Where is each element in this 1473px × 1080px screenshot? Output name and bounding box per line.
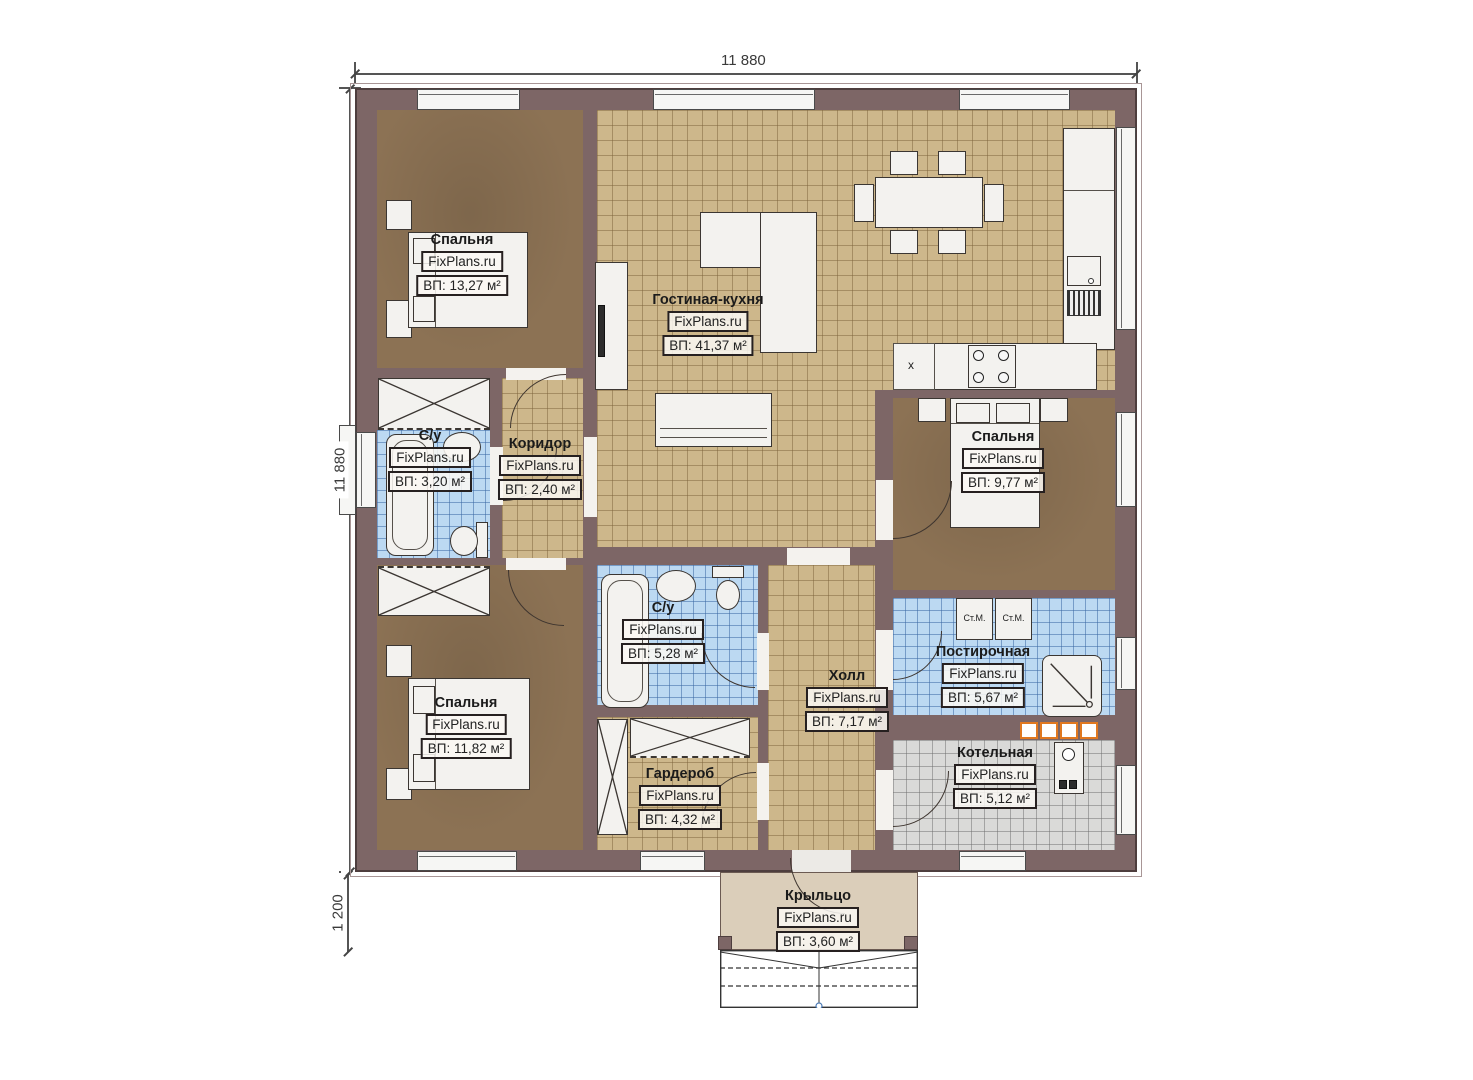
opening-bedroom2-door (876, 480, 893, 540)
nightstand (386, 645, 412, 677)
closet (378, 566, 490, 616)
room-label-boiler: Котельная FixPlans.ru ВП: 5,12 м² (953, 745, 1037, 809)
room-name: Постирочная (936, 644, 1030, 660)
coffee-table (655, 393, 772, 447)
opening-bath2-door (757, 633, 769, 690)
room-label-corridor: Коридор FixPlans.ru ВП: 2,40 м² (498, 436, 582, 500)
room-label-porch: Крыльцо FixPlans.ru ВП: 3,60 м² (776, 888, 860, 952)
room-area: ВП: 5,67 м² (941, 687, 1025, 708)
washing-machine-label: Ст.М. (959, 613, 990, 623)
stove-burner (998, 372, 1009, 383)
room-name: Котельная (957, 745, 1033, 761)
washing-machine-label: Ст.М. (998, 613, 1029, 623)
toilet-tank (712, 566, 744, 578)
room-name: Холл (829, 668, 865, 684)
washbasin (656, 570, 696, 602)
room-area: ВП: 4,32 м² (638, 809, 722, 830)
room-name: Крыльцо (785, 888, 851, 904)
window-right-laundry (1116, 637, 1136, 690)
room-area: ВП: 7,17 м² (805, 711, 889, 732)
room-label-bath2: С/у FixPlans.ru ВП: 5,28 м² (621, 600, 705, 664)
dining-chair (984, 184, 1004, 222)
window-top-2 (653, 89, 815, 110)
window-bottom-2 (640, 851, 705, 871)
dish-rack (1067, 290, 1101, 316)
room-area: ВП: 3,60 м² (776, 931, 860, 952)
toilet-bowl (450, 526, 478, 556)
radiator-section (1020, 722, 1038, 739)
room-label-bath1: С/у FixPlans.ru ВП: 3,20 м² (388, 428, 472, 492)
porch-post (718, 936, 732, 950)
room-area: ВП: 41,37 м² (662, 335, 754, 356)
watermark-box: FixPlans.ru (499, 455, 581, 476)
room-label-wardrobe: Гардероб FixPlans.ru ВП: 4,32 м² (638, 766, 722, 830)
room-name: С/у (652, 600, 675, 616)
kitchen-faucet (1088, 278, 1094, 284)
room-area: ВП: 9,77 м² (961, 472, 1045, 493)
room-area: ВП: 5,12 м² (953, 788, 1037, 809)
pillow (413, 296, 435, 322)
stove-burner (973, 372, 984, 383)
opening-bedroom3-door (506, 558, 566, 570)
counter-divider (1064, 190, 1114, 191)
porch-steps (720, 950, 918, 1008)
watermark-box: FixPlans.ru (421, 251, 503, 272)
room-area: ВП: 2,40 м² (498, 479, 582, 500)
nightstand (918, 398, 946, 422)
kitchen-sink (1067, 256, 1101, 286)
dining-chair (890, 151, 918, 175)
room-name: Гардероб (646, 766, 715, 782)
opening-boiler-door (876, 770, 893, 830)
floor-plan: 11 880 11 880 1 200 (0, 0, 1473, 1080)
dining-chair (890, 230, 918, 254)
window-bottom-1 (417, 851, 517, 871)
wardrobe-cabinet-vertical (597, 719, 628, 835)
pillow (996, 403, 1030, 423)
room-area: ВП: 5,28 м² (621, 643, 705, 664)
room-name: Спальня (435, 695, 498, 711)
room-name: Спальня (972, 429, 1035, 445)
boiler-dial (1062, 748, 1075, 761)
boiler-control (1059, 780, 1067, 789)
dining-chair (938, 151, 966, 175)
kitchen-counter-right (1063, 128, 1115, 350)
nightstand (386, 200, 412, 230)
watermark-box: FixPlans.ru (954, 764, 1036, 785)
watermark-box: FixPlans.ru (962, 448, 1044, 469)
stove-burner (998, 350, 1009, 361)
dimension-top-label: 11 880 (715, 52, 772, 69)
room-label-bedroom2: Спальня FixPlans.ru ВП: 9,77 м² (961, 429, 1045, 493)
watermark-box: FixPlans.ru (389, 447, 471, 468)
room-label-living: Гостиная-кухня FixPlans.ru ВП: 41,37 м² (652, 292, 763, 356)
room-name: Гостиная-кухня (652, 292, 763, 308)
window-right-bedroom2 (1116, 412, 1136, 507)
radiator-section (1080, 722, 1098, 739)
stove-burner (973, 350, 984, 361)
tv (598, 305, 605, 357)
coffee-table-line (660, 428, 767, 429)
room-label-bedroom1: Спальня FixPlans.ru ВП: 13,27 м² (416, 232, 508, 296)
pillow (956, 403, 990, 423)
wardrobe-cabinet-horizontal (630, 718, 750, 758)
opening-corridor-living (584, 437, 597, 517)
room-label-bedroom3: Спальня FixPlans.ru ВП: 11,82 м² (421, 695, 512, 759)
watermark-box: FixPlans.ru (806, 687, 888, 708)
watermark-box: FixPlans.ru (425, 714, 507, 735)
room-area: ВП: 11,82 м² (421, 738, 512, 759)
room-label-hall: Холл FixPlans.ru ВП: 7,17 м² (805, 668, 889, 732)
opening-hall-living (787, 548, 850, 565)
sofa-corner-vertical (760, 212, 817, 353)
dining-table (875, 177, 983, 228)
watermark-box: FixPlans.ru (777, 907, 859, 928)
window-left-bath1 (356, 432, 376, 508)
closet (378, 378, 490, 430)
porch-post (904, 936, 918, 950)
room-name: Спальня (431, 232, 494, 248)
dimension-porch-label: 1 200 (330, 888, 347, 938)
dining-chair (854, 184, 874, 222)
opening-wardrobe-door (757, 763, 769, 820)
window-bottom-3 (959, 851, 1026, 871)
window-top-3 (959, 89, 1070, 110)
watermark-box: FixPlans.ru (639, 785, 721, 806)
coffee-table-line (660, 437, 767, 438)
shower-tray (1042, 655, 1102, 717)
window-right-boiler (1116, 765, 1136, 835)
room-area: ВП: 13,27 м² (416, 275, 508, 296)
watermark-box: FixPlans.ru (942, 663, 1024, 684)
room-label-laundry: Постирочная FixPlans.ru ВП: 5,67 м² (936, 644, 1030, 708)
room-area: ВП: 3,20 м² (388, 471, 472, 492)
radiator-section (1060, 722, 1078, 739)
room-name: С/у (419, 428, 442, 444)
window-top-1 (417, 89, 520, 110)
dining-chair (938, 230, 966, 254)
sink-unit-cabinet (893, 343, 935, 390)
dimension-left-label: 11 880 (332, 442, 349, 499)
watermark-box: FixPlans.ru (667, 311, 749, 332)
room-name: Коридор (509, 436, 571, 452)
toilet-bowl (716, 580, 740, 610)
radiator-section (1040, 722, 1058, 739)
boiler-control (1069, 780, 1077, 789)
nightstand (1040, 398, 1068, 422)
watermark-box: FixPlans.ru (622, 619, 704, 640)
window-right-kitchen (1116, 127, 1136, 330)
sink-unit-marker: x (908, 358, 914, 372)
